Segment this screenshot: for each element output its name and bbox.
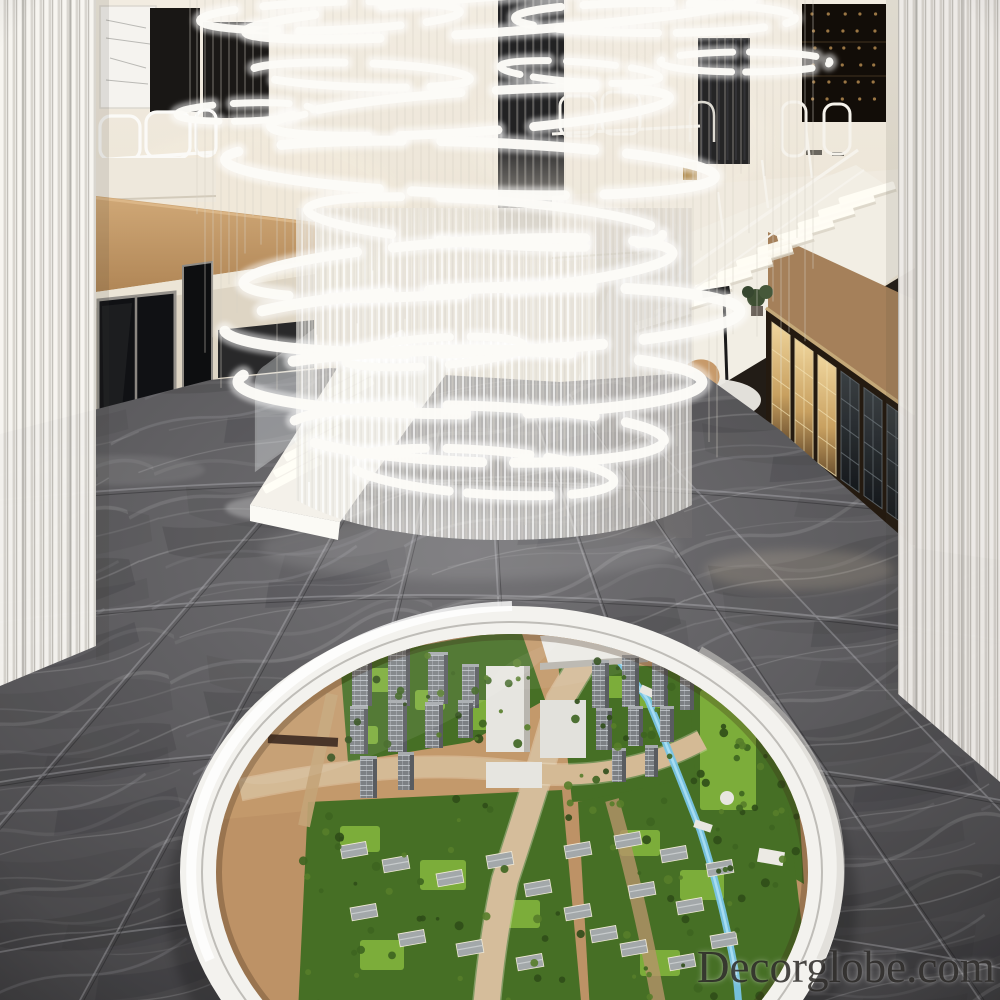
lobby-photo: Decorglobe.com <box>0 0 1000 1000</box>
watermark-text: Decorglobe.com <box>697 941 995 993</box>
vignette <box>0 0 1000 1000</box>
scene-svg <box>0 0 1000 1000</box>
